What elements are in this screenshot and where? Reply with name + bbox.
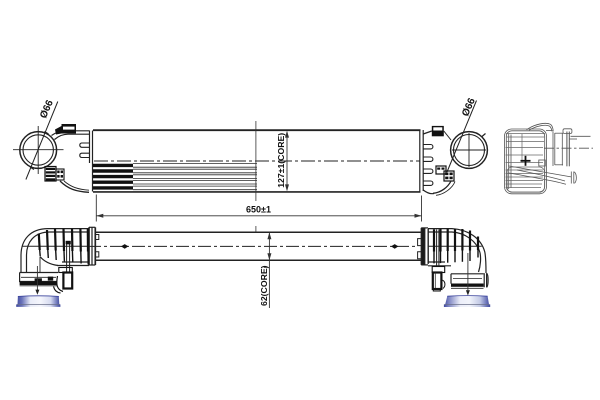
svg-text:Ø66: Ø66: [460, 96, 478, 118]
svg-text:127±1(CORE): 127±1(CORE): [276, 133, 286, 188]
svg-text:Ø66: Ø66: [38, 98, 56, 120]
svg-text:62(CORE): 62(CORE): [259, 265, 269, 306]
svg-text:650±1: 650±1: [246, 204, 271, 214]
